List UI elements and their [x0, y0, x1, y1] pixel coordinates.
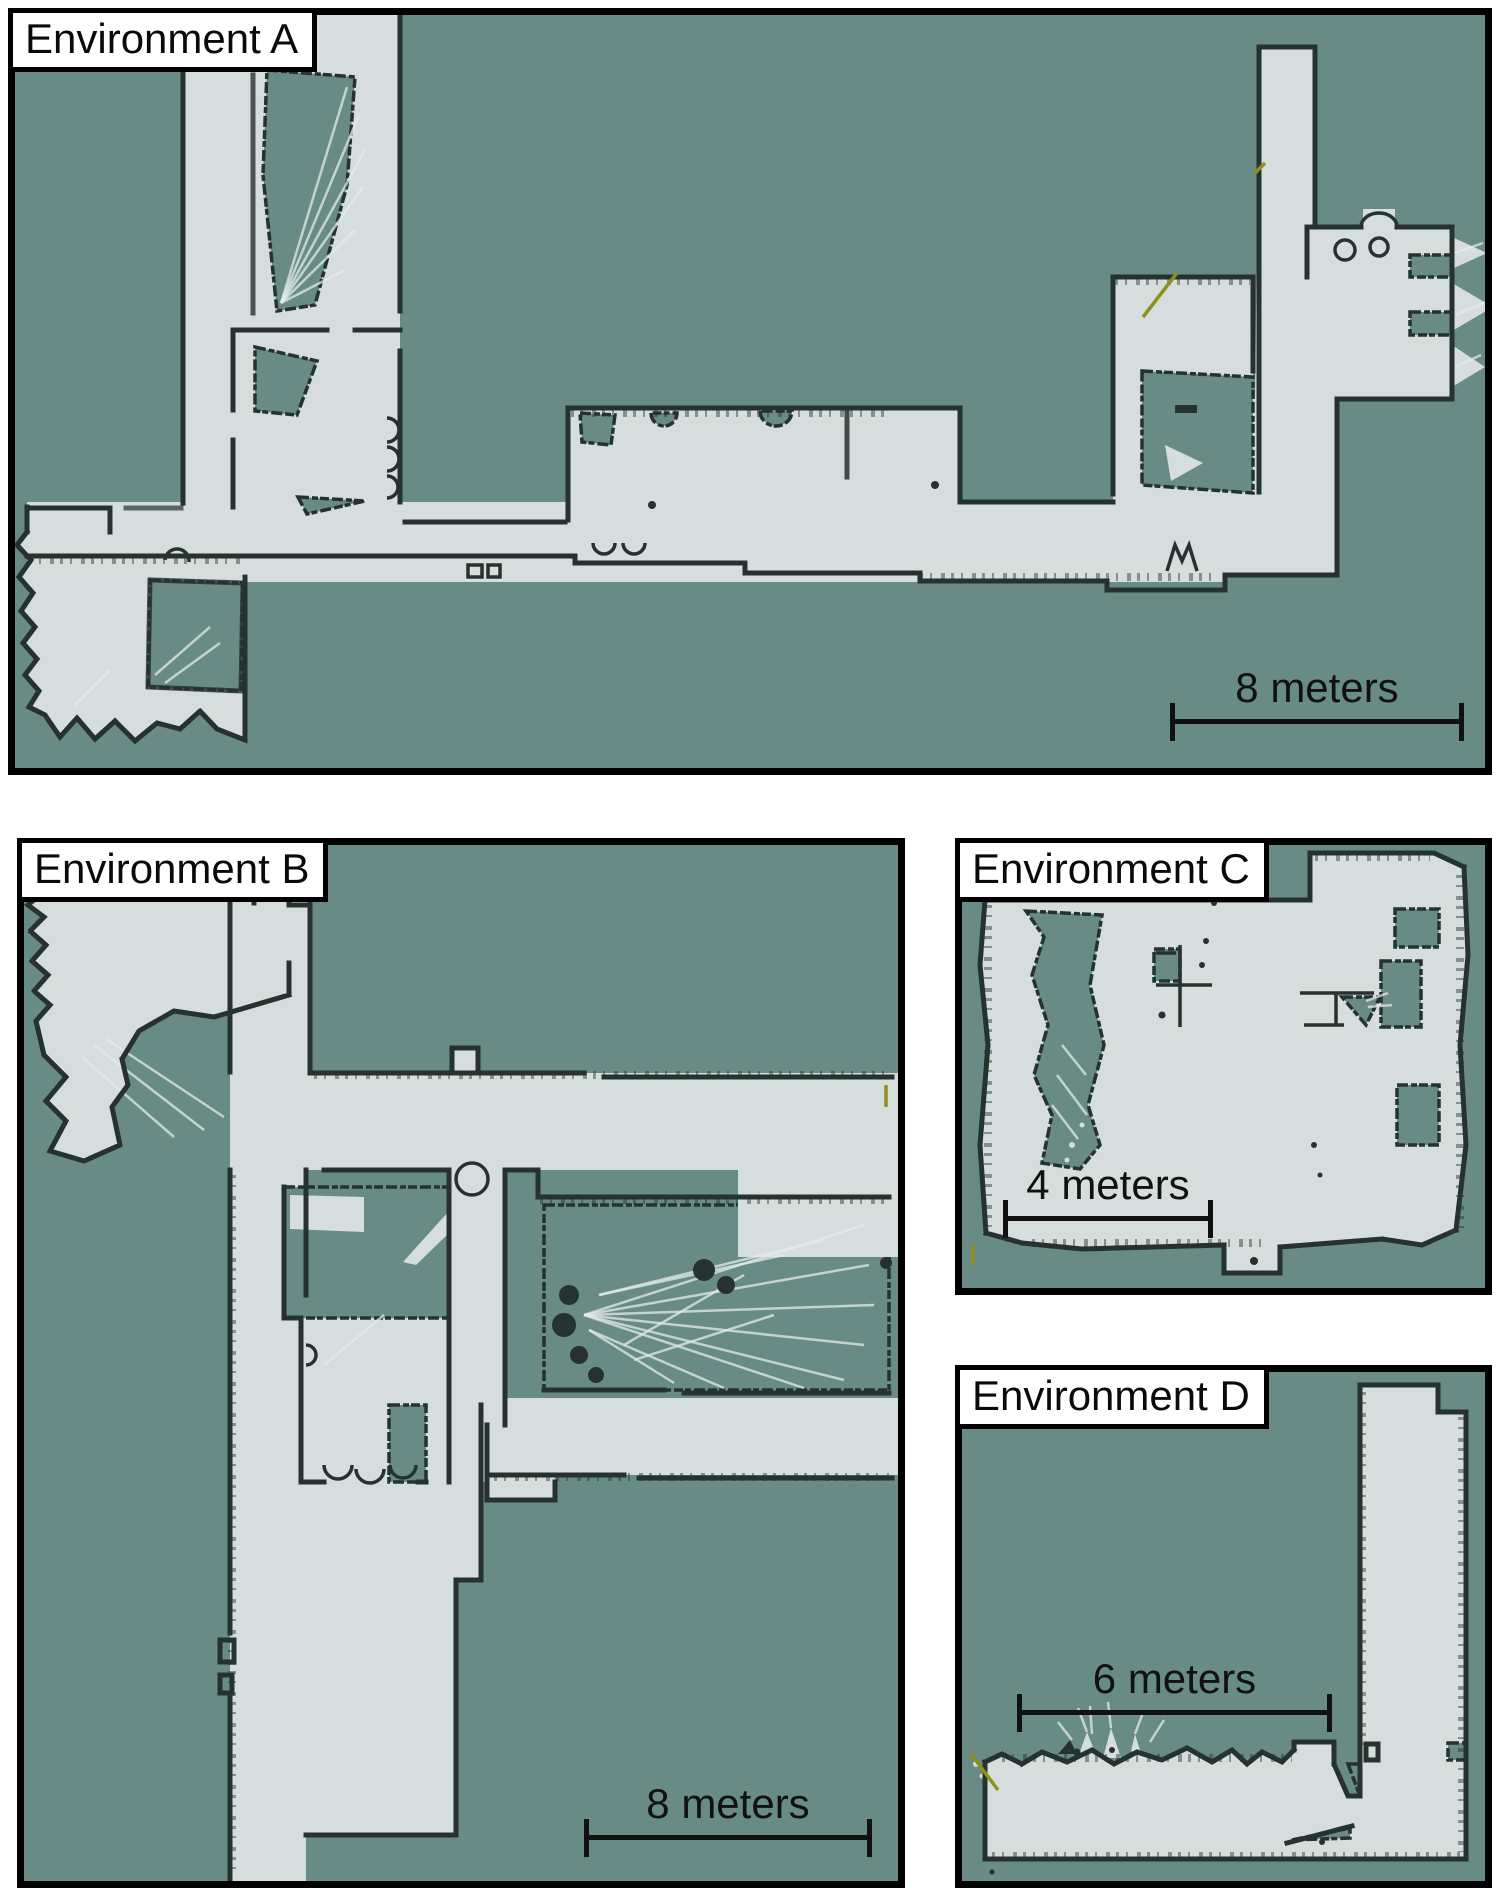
panel-environment-d: Environment D 6 meters: [955, 1365, 1492, 1888]
panel-title-text: Environment A: [25, 15, 298, 62]
panel-environment-c: Environment C 4 meters: [955, 838, 1492, 1295]
panel-title-a: Environment A: [8, 8, 317, 72]
scalebar-d: 6 meters: [1017, 1656, 1332, 1715]
scalebar-c: 4 meters: [1003, 1162, 1213, 1221]
panel-environment-a: Environment A 8 meters: [8, 8, 1492, 775]
scalebar-a-bar: [1170, 719, 1464, 724]
map-environment-b: [24, 845, 898, 1881]
panel-environment-b: Environment B 8 meters: [17, 838, 905, 1888]
panel-title-text: Environment B: [34, 845, 309, 892]
panel-title-c: Environment C: [955, 838, 1269, 902]
scalebar-b: 8 meters: [584, 1781, 872, 1840]
map-environment-c: [962, 845, 1485, 1288]
scalebar-d-label: 6 meters: [1017, 1656, 1332, 1702]
scalebar-b-bar: [584, 1835, 872, 1840]
scalebar-d-bar: [1017, 1710, 1332, 1715]
scalebar-c-bar: [1003, 1216, 1213, 1221]
map-environment-a: [15, 15, 1485, 768]
scalebar-a: 8 meters: [1170, 665, 1464, 724]
free-space-layer: [985, 1385, 1466, 1859]
panel-title-text: Environment C: [972, 845, 1250, 892]
panel-title-b: Environment B: [17, 838, 328, 902]
map-environment-d: [962, 1372, 1485, 1881]
scalebar-b-label: 8 meters: [584, 1781, 872, 1827]
panel-title-text: Environment D: [972, 1372, 1250, 1419]
scalebar-c-label: 4 meters: [1003, 1162, 1213, 1208]
scalebar-a-label: 8 meters: [1170, 665, 1464, 711]
panel-title-d: Environment D: [955, 1365, 1269, 1429]
